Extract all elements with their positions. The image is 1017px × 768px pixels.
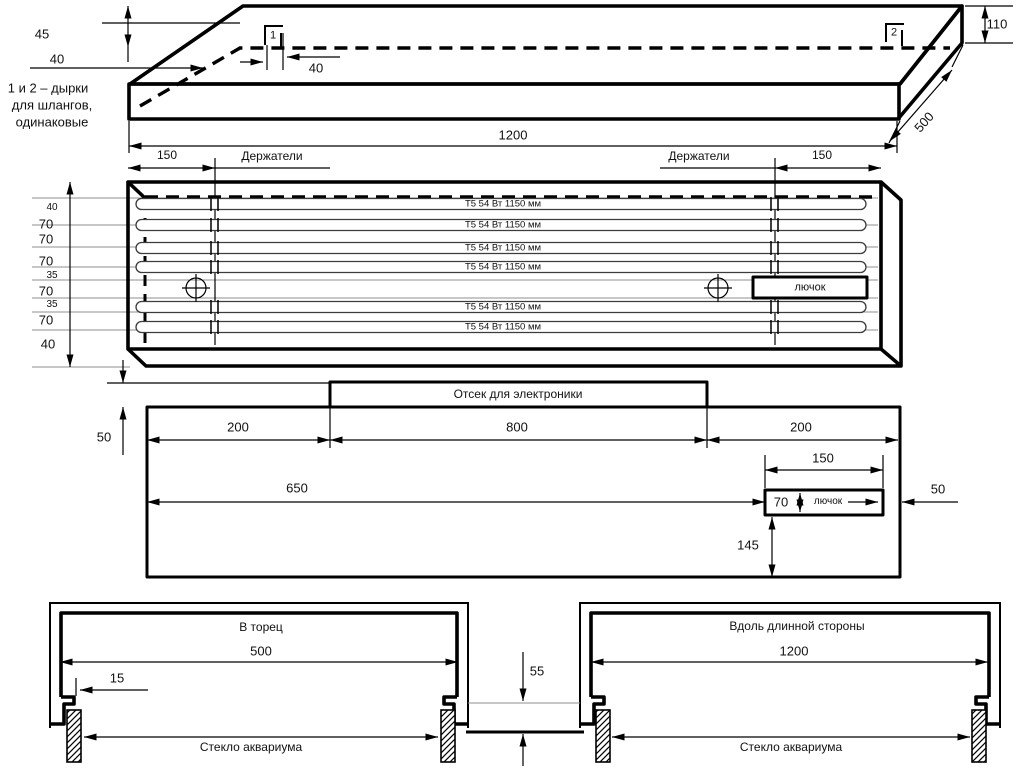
hatch-bottom-label: лючок: [814, 497, 842, 507]
box-right-face: [898, 6, 962, 119]
aquarium-hood-drawing: 1 и 2 – дырки для шлангов, одинаковые 45…: [0, 0, 1017, 768]
glass-section: [596, 710, 610, 762]
gap-55-dim: [466, 652, 584, 766]
stack-dim-label: 35: [46, 271, 57, 281]
stack-dim-label: 70: [39, 218, 53, 231]
dim-145-label: 145: [737, 539, 759, 552]
stack-dim-label: 70: [39, 255, 53, 268]
stack-dim-label: 70: [39, 233, 53, 246]
dim-150-right-label: 150: [812, 149, 832, 161]
glass-label-end: Стекло аквариума: [200, 741, 302, 753]
compartment-label: Отсек для электроники: [454, 388, 583, 400]
hole-2-label: 2: [891, 28, 897, 39]
stack-dim-label: 70: [39, 285, 53, 298]
dim-50-right-label: 50: [931, 483, 945, 496]
note-line: одинаковые: [16, 116, 89, 129]
lamp-label: Т5 54 Вт 1150 мм: [465, 243, 541, 253]
lamp-label: Т5 54 Вт 1150 мм: [465, 322, 541, 332]
stack-dim-label: 40: [46, 203, 57, 213]
note-line: для шлангов,: [12, 99, 92, 112]
drawing-canvas: [0, 0, 1017, 768]
note-line: 1 и 2 – дырки: [8, 82, 89, 95]
dim-45-label: 45: [35, 28, 49, 41]
dim-110-label: 110: [987, 18, 1008, 31]
dim-40-right-label: 40: [309, 62, 323, 75]
dim-50-left-label: 50: [97, 431, 111, 444]
lamp-label: Т5 54 Вт 1150 мм: [465, 262, 541, 272]
hole-1-label: 1: [270, 31, 276, 42]
stack-dim-label: 70: [39, 314, 53, 327]
glass-label-side: Стекло аквариума: [740, 741, 842, 753]
dim-40-left-label: 40: [50, 53, 64, 66]
box-top-face: [130, 6, 962, 84]
dim-650-label: 650: [286, 482, 308, 495]
dim-70-label: 70: [774, 496, 788, 509]
dim-500-end-label: 500: [248, 645, 274, 658]
dim-150-hatch-label: 150: [812, 452, 834, 465]
dim-1200-side-label: 1200: [778, 645, 811, 658]
glass-section: [972, 710, 986, 762]
stack-dim-label: 35: [46, 300, 57, 310]
lamp-label: Т5 54 Вт 1150 мм: [465, 220, 541, 230]
dim-200-right-label: 200: [790, 421, 812, 434]
box-front-face: [129, 84, 899, 119]
holders-left-label: Держатели: [241, 150, 302, 162]
dim-800-label: 800: [506, 421, 528, 434]
hatch-plan-label: лючок: [794, 283, 825, 294]
glass-section: [441, 710, 455, 762]
dim-1200-label: 1200: [499, 129, 528, 142]
dim-55-label: 55: [530, 665, 544, 678]
dim-150-left-label: 150: [157, 149, 177, 161]
side-section-title: Вдоль длинной стороны: [729, 620, 864, 632]
lamp-label: Т5 54 Вт 1150 мм: [465, 199, 541, 209]
stack-dim-label: 40: [41, 338, 55, 351]
holders-right-label: Держатели: [668, 150, 729, 162]
lamp-label: Т5 54 Вт 1150 мм: [465, 302, 541, 312]
glass-section: [67, 710, 81, 762]
hidden-edge-dashed: [140, 48, 950, 106]
dim-200-left-label: 200: [227, 421, 249, 434]
dim-15-label: 15: [110, 672, 124, 685]
end-section-title: В торец: [239, 621, 283, 633]
